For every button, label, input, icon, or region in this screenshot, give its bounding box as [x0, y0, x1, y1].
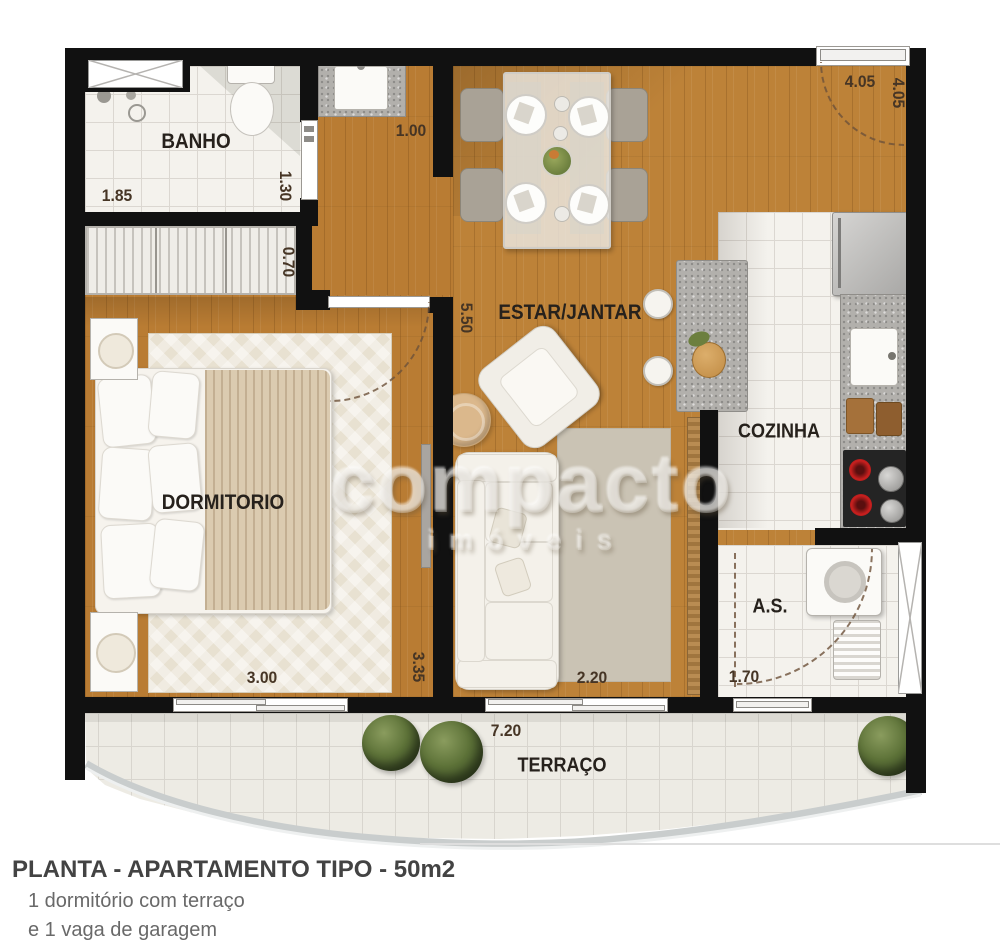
closet-divider [225, 228, 227, 293]
dim-living-width: 2.20 [577, 668, 607, 688]
nightstand-lamp [98, 333, 134, 369]
wall-banho-right-upper [300, 48, 318, 122]
banho-window [88, 60, 183, 88]
plan-title: PLANTA - APARTAMENTO TIPO - 50m2 [12, 856, 455, 884]
room-label-estar: ESTAR/JANTAR [498, 301, 641, 325]
sideboard-slats [687, 417, 701, 695]
bed-blanket [205, 370, 330, 610]
wall-estar-cozinha [700, 410, 718, 697]
closet [85, 226, 296, 295]
dining-chair [460, 168, 504, 222]
wall-dorm-estar [433, 297, 453, 697]
pot-icon [878, 466, 904, 492]
sofa-back [457, 480, 485, 662]
dining-chair [606, 88, 648, 142]
dim-banho-width: 1.85 [102, 186, 132, 206]
dresser-panel [421, 444, 431, 568]
cutting-board [876, 402, 902, 436]
salad-bowl [541, 145, 573, 177]
sofa-armrest [457, 660, 557, 688]
dorm-slider-panel [256, 705, 345, 711]
kitchen-faucet-icon [888, 352, 896, 360]
plan-subtitle-2: e 1 vaga de garagem [28, 919, 217, 942]
hall-basin [334, 66, 388, 110]
glass [553, 126, 568, 141]
toilet-bowl [230, 82, 274, 136]
room-label-cozinha: COZINHA [738, 421, 820, 444]
dim-terrace-width: 7.20 [491, 721, 521, 741]
estar-slider-panel [488, 699, 583, 705]
burner-icon [849, 459, 871, 481]
bed-pillow [148, 518, 205, 593]
fruit [549, 150, 559, 159]
dim-living-depth: 5.50 [456, 303, 476, 333]
dorm-slider-panel [176, 699, 266, 705]
glass [554, 206, 570, 222]
plant-bush [362, 715, 420, 771]
estar-slider-panel [572, 705, 665, 711]
servico-window [898, 542, 922, 694]
living-rug [557, 428, 671, 682]
wall-banho-right-lower [300, 198, 318, 226]
dim-banho-depth: 1.30 [275, 171, 295, 201]
bread-basket [692, 342, 726, 378]
bar-stool [643, 356, 673, 386]
sofa-seat [485, 602, 553, 660]
shower-hose-icon [128, 104, 146, 122]
dim-entry-depth: 4.05 [888, 78, 908, 108]
kitchen-island [676, 260, 748, 412]
banho-door-hinge-icon [304, 136, 314, 142]
bar-stool [643, 289, 673, 319]
wall-hall-estar [433, 48, 453, 177]
dim-closet-depth: 0.70 [278, 247, 298, 277]
cutting-board [846, 398, 874, 434]
servico-terrace-door-leaf [736, 701, 809, 708]
glass [554, 96, 570, 112]
room-label-terraco: TERRAÇO [517, 755, 606, 778]
fridge [832, 212, 908, 296]
plant-bush [420, 721, 483, 783]
dim-bedroom-depth: 3.35 [408, 652, 428, 682]
banho-door-hinge-icon [304, 126, 314, 132]
room-label-banho: BANHO [161, 130, 230, 154]
sofa-armrest [457, 454, 557, 482]
dining-chair [606, 168, 648, 222]
wall-left [65, 48, 85, 780]
dim-entry-width: 4.05 [845, 72, 875, 92]
wall-top [65, 48, 925, 66]
caption-divider [420, 843, 1000, 845]
fridge-handle [838, 218, 841, 288]
entry-door-leaf [820, 49, 906, 61]
wall-banho-closet [85, 212, 303, 226]
room-label-dormitorio: DORMITORIO [162, 491, 285, 515]
nightstand-tray [96, 633, 136, 673]
banho-door [301, 120, 318, 200]
dim-service-width: 1.70 [729, 667, 759, 687]
wall-dorm-door-block [296, 290, 330, 310]
dining-chair [460, 88, 504, 142]
bed-pillow [147, 370, 201, 440]
wall-closet-right [296, 226, 312, 297]
burner-icon [850, 494, 872, 516]
dim-bedroom-width: 3.00 [247, 668, 277, 688]
room-label-servico: A.S. [752, 596, 787, 619]
dim-hall-width: 1.00 [396, 121, 426, 141]
pot-icon [880, 499, 904, 523]
closet-divider [155, 228, 157, 293]
plan-subtitle-1: 1 dormitório com terraço [28, 890, 245, 913]
floorplan-page: { "plan": { "rooms": { "banho": "BANHO",… [0, 0, 1000, 950]
wall-cozinha-servico [815, 528, 906, 545]
